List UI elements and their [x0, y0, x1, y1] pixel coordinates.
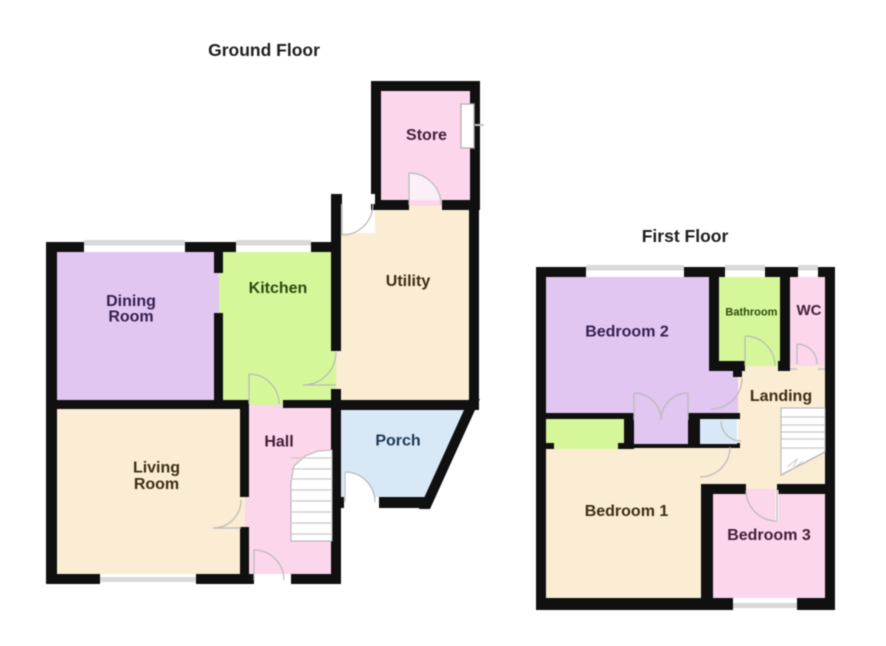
svg-text:Ground Floor: Ground Floor	[208, 40, 320, 60]
svg-text:Kitchen: Kitchen	[249, 280, 308, 297]
svg-text:Bathroom: Bathroom	[725, 307, 777, 319]
svg-text:Bedroom 3: Bedroom 3	[727, 527, 811, 544]
svg-text:Room: Room	[134, 476, 179, 493]
svg-text:Porch: Porch	[375, 433, 420, 450]
svg-text:WC: WC	[797, 302, 822, 319]
svg-text:Room: Room	[108, 309, 153, 326]
svg-text:Hall: Hall	[264, 434, 293, 451]
svg-text:Store: Store	[406, 127, 447, 144]
svg-text:Landing: Landing	[750, 388, 812, 405]
svg-text:Utility: Utility	[386, 273, 431, 290]
svg-text:Bedroom 1: Bedroom 1	[585, 503, 669, 520]
svg-text:First Floor: First Floor	[642, 226, 729, 246]
svg-text:Dining: Dining	[106, 293, 156, 310]
svg-text:Bedroom 2: Bedroom 2	[585, 324, 669, 341]
svg-text:Living: Living	[133, 460, 180, 477]
